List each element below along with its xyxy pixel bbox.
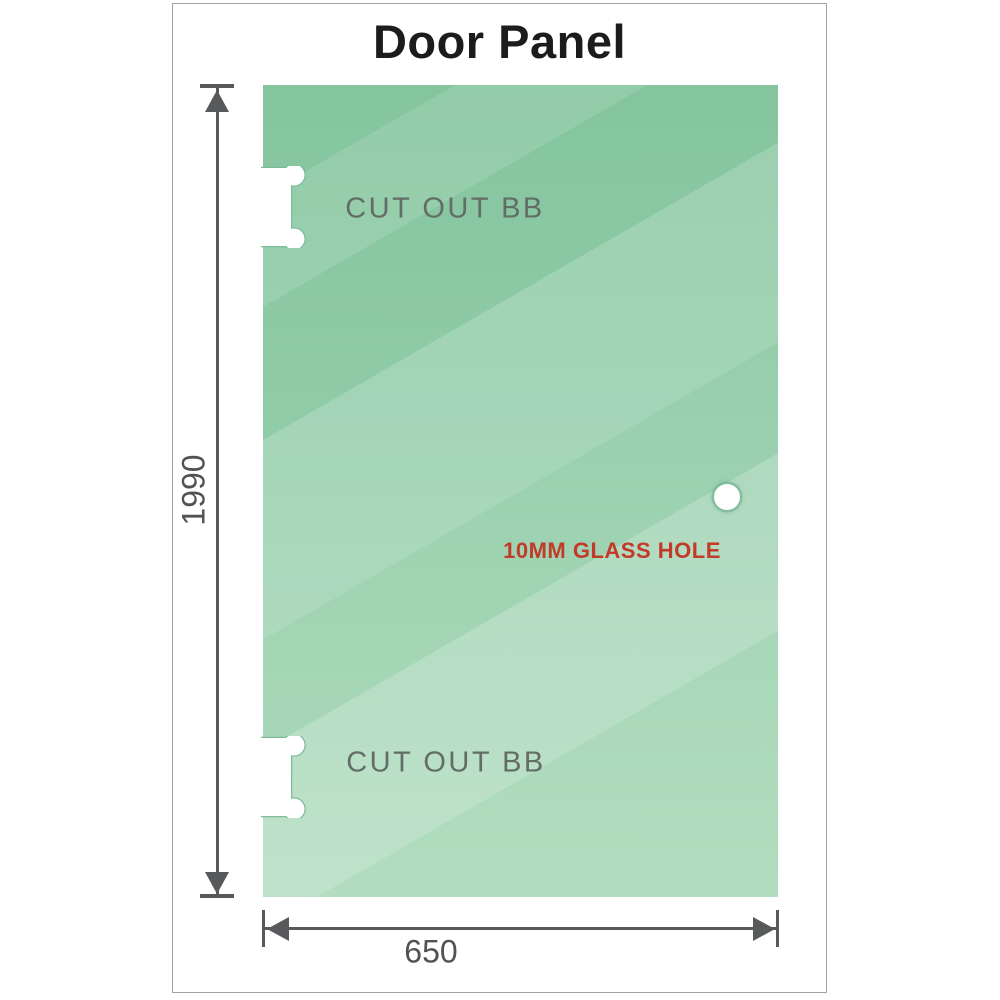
width-dimension-value: 650 (404, 934, 457, 971)
dimension-line (216, 87, 219, 897)
hinge-cutout-top (261, 166, 307, 248)
arrow-left-icon (267, 917, 289, 941)
dimension-line (264, 927, 777, 930)
cutout-top-label: CUT OUT BB (345, 193, 545, 226)
arrow-right-icon (753, 917, 775, 941)
cutout-bottom-label: CUT OUT BB (346, 747, 546, 780)
height-dimension-value: 1990 (176, 454, 213, 525)
glass-panel: CUT OUT BB CUT OUT BB 10MM GLASS HOLE (263, 85, 778, 897)
glass-hole-label: 10MM GLASS HOLE (503, 538, 721, 564)
hinge-cutout-shape-icon (261, 736, 307, 818)
glass-hole (714, 484, 740, 510)
page-title: Door Panel (172, 14, 827, 69)
arrow-down-icon (205, 872, 229, 894)
hinge-cutout-shape-icon (261, 166, 307, 248)
door-panel-diagram: Door Panel (0, 0, 1000, 1000)
arrow-up-icon (205, 90, 229, 112)
hinge-cutout-bottom (261, 736, 307, 818)
